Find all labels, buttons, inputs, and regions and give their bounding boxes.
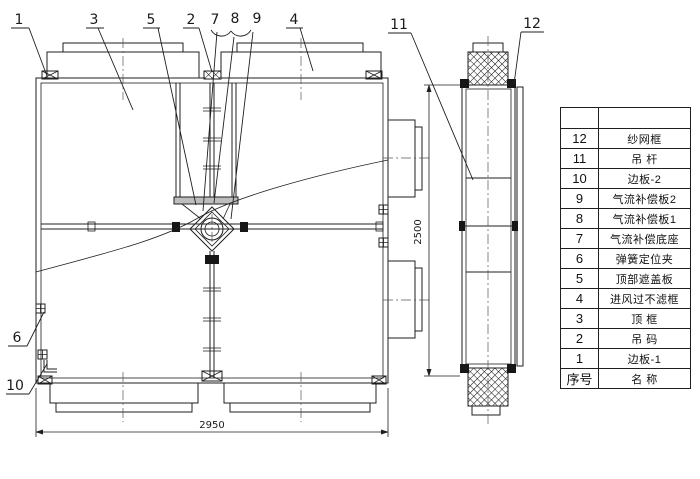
callout-10: 10 (6, 378, 24, 394)
part-name: 吊 杆 (599, 149, 691, 169)
part-number: 8 (561, 209, 599, 229)
part-number: 6 (561, 249, 599, 269)
centerlines-front (123, 38, 432, 422)
callout-12: 12 (523, 16, 541, 32)
front-casing-outer (36, 78, 388, 383)
spring-clips-left (36, 304, 57, 372)
callout-5: 5 (147, 12, 156, 28)
part-name: 吊 码 (599, 329, 691, 349)
side-duct-lower (388, 261, 422, 338)
table-row: 11吊 杆 (561, 149, 691, 169)
table-row: 1边板-1 (561, 349, 691, 369)
table-row: 7气流补偿底座 (561, 229, 691, 249)
part-number: 3 (561, 309, 599, 329)
callout-3: 3 (90, 12, 99, 28)
table-row (561, 108, 691, 129)
table-row: 10边板-2 (561, 169, 691, 189)
hanging-bracket-center (204, 71, 221, 79)
table-row: 2吊 码 (561, 329, 691, 349)
table-header-row: 序号 名 称 (561, 369, 691, 389)
part-number: 10 (561, 169, 599, 189)
mesh-frame-bottom (460, 364, 516, 415)
callout-6: 6 (13, 330, 22, 346)
part-name: 气流补偿板1 (599, 209, 691, 229)
bottom-duct-left (50, 383, 198, 412)
top-cover-plate (174, 197, 238, 204)
engineering-drawing-page: 2950 2500 (0, 0, 700, 479)
table-row: 9气流补偿板2 (561, 189, 691, 209)
height-dimension-label: 2500 (413, 219, 424, 244)
table-row: 3顶 框 (561, 309, 691, 329)
part-name: 顶部遮盖板 (599, 269, 691, 289)
callout-4: 4 (290, 12, 299, 28)
part-number: 1 (561, 349, 599, 369)
callout-8: 8 (231, 11, 240, 27)
table-row: 8气流补偿板1 (561, 209, 691, 229)
part-number: 12 (561, 129, 599, 149)
part-name: 弹簧定位夹 (599, 249, 691, 269)
part-name: 顶 框 (599, 309, 691, 329)
part-number: 11 (561, 149, 599, 169)
side-duct-upper (388, 120, 422, 197)
callouts: 1 3 5 2 7 8 9 4 11 12 6 10 (6, 11, 544, 394)
part-number: 7 (561, 229, 599, 249)
callout-7: 7 (211, 12, 220, 28)
callout-9: 9 (253, 11, 262, 27)
part-name: 纱网框 (599, 129, 691, 149)
center-channel (174, 83, 238, 219)
part-number: 5 (561, 269, 599, 289)
part-name: 边板-1 (599, 349, 691, 369)
part-name: 气流补偿板2 (599, 189, 691, 209)
part-number: 4 (561, 289, 599, 309)
part-name: 气流补偿底座 (599, 229, 691, 249)
front-view: 2950 (36, 38, 432, 437)
part-number: 2 (561, 329, 599, 349)
table-row: 12纱网框 (561, 129, 691, 149)
front-casing-inner (41, 83, 383, 378)
table-row: 4进风过不滤框 (561, 289, 691, 309)
table-row: 5顶部遮盖板 (561, 269, 691, 289)
part-number (561, 108, 599, 129)
part-number: 9 (561, 189, 599, 209)
part-name: 边板-2 (599, 169, 691, 189)
part-name: 进风过不滤框 (599, 289, 691, 309)
side-view: 2500 (413, 36, 523, 424)
callout-2: 2 (187, 12, 196, 28)
table-row: 6弹簧定位夹 (561, 249, 691, 269)
callout-1: 1 (15, 12, 24, 28)
header-name: 名 称 (599, 369, 691, 389)
spring-clips-right (379, 205, 388, 247)
header-serial: 序号 (561, 369, 599, 389)
parts-table: 12纱网框11吊 杆10边板-29气流补偿板28气流补偿板17气流补偿底座6弹簧… (560, 107, 691, 389)
callout-11: 11 (390, 17, 408, 33)
part-name (599, 108, 691, 129)
bottom-duct-right (224, 383, 376, 412)
side-interior-members (459, 178, 518, 272)
width-dimension-label: 2950 (199, 420, 224, 431)
dimension-height: 2500 (413, 85, 460, 376)
lower-rod (202, 251, 222, 381)
parts-table-body: 12纱网框11吊 杆10边板-29气流补偿板28气流补偿板17气流补偿底座6弹簧… (561, 108, 691, 369)
